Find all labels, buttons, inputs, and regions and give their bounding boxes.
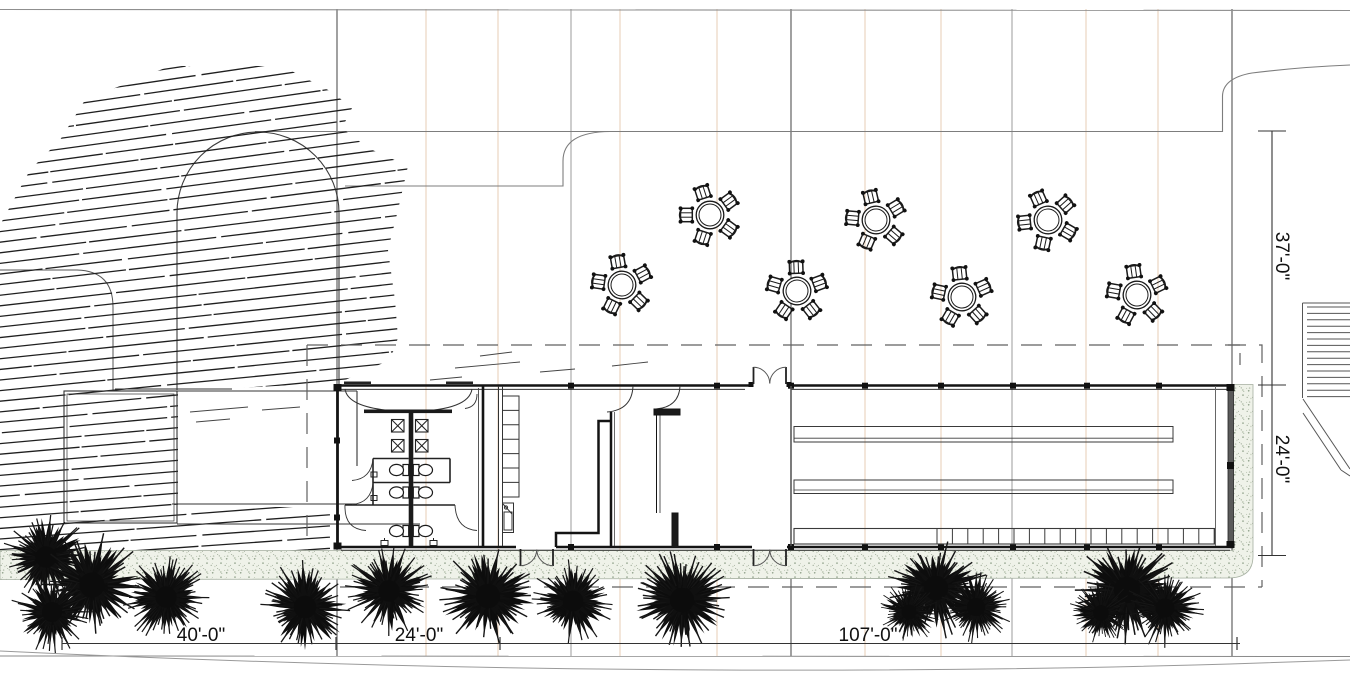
svg-text:40'-0": 40'-0" (177, 625, 225, 646)
svg-text:37'-0": 37'-0" (1271, 232, 1292, 280)
svg-text:24'-0": 24'-0" (395, 625, 443, 646)
svg-text:24'-0": 24'-0" (1271, 435, 1292, 483)
svg-text:107'-0": 107'-0" (839, 625, 898, 646)
